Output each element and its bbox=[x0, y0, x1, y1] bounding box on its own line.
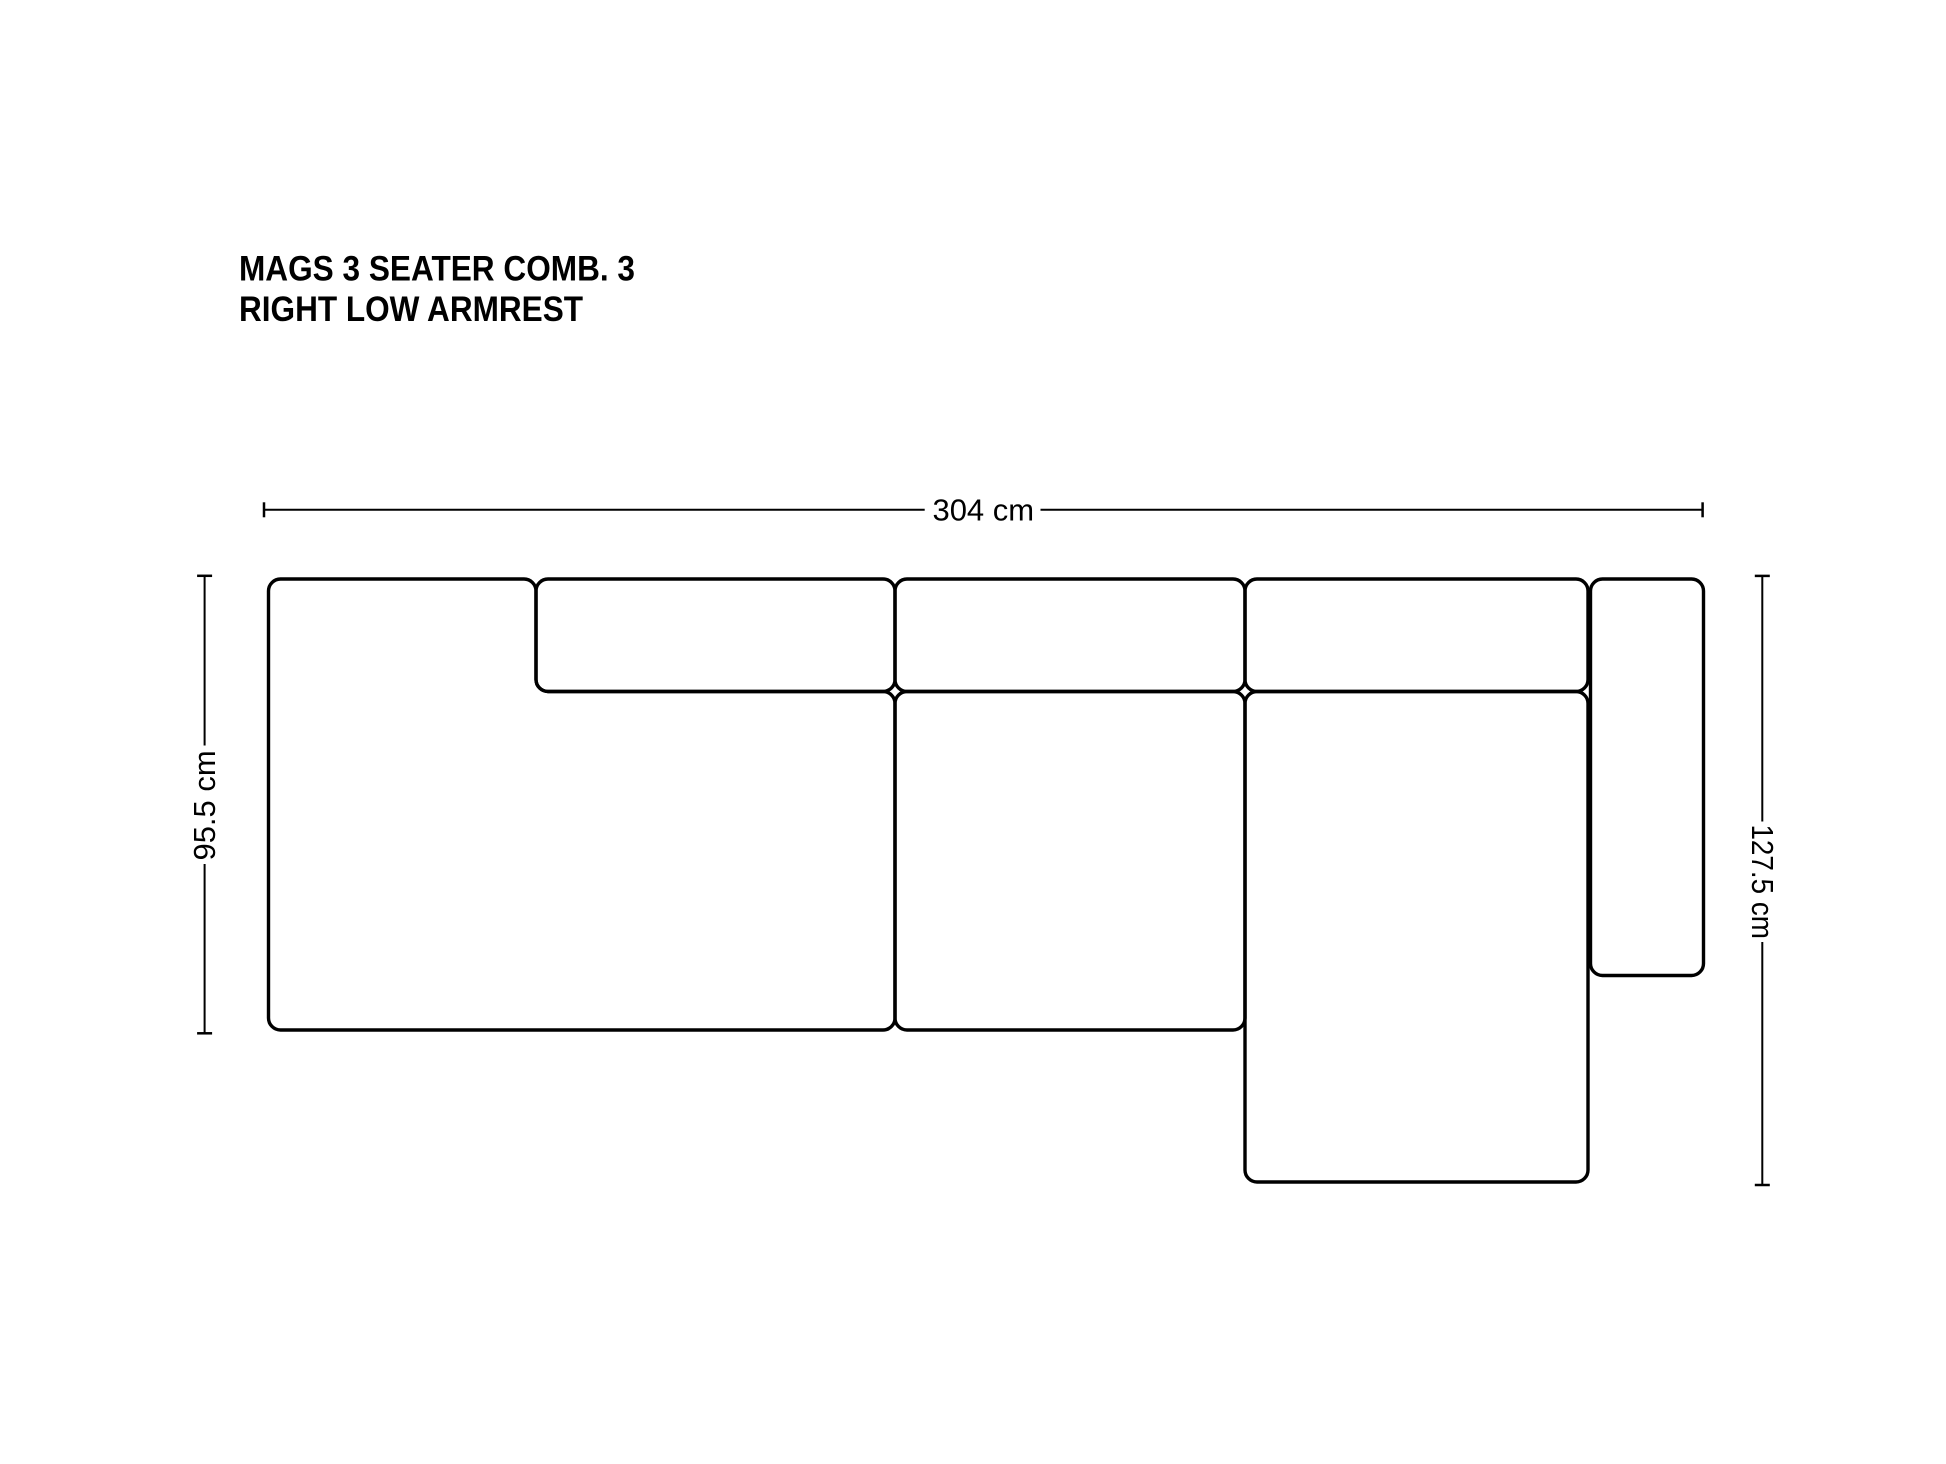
svg-text:95.5 cm: 95.5 cm bbox=[187, 750, 222, 860]
svg-text:304 cm: 304 cm bbox=[932, 492, 1034, 527]
svg-text:RIGHT LOW ARMREST: RIGHT LOW ARMREST bbox=[239, 290, 583, 329]
svg-text:127.5 cm: 127.5 cm bbox=[1745, 824, 1780, 939]
svg-text:MAGS 3 SEATER COMB. 3: MAGS 3 SEATER COMB. 3 bbox=[239, 250, 635, 289]
